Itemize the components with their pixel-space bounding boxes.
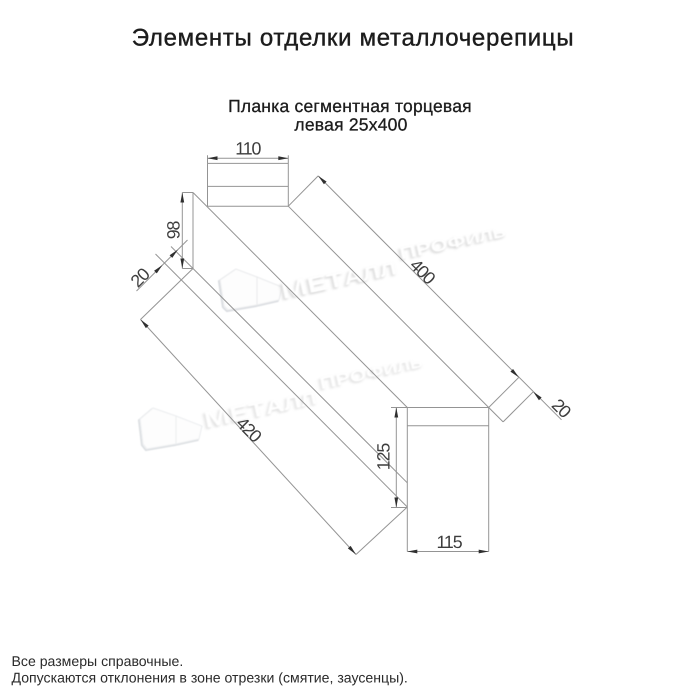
svg-text:98: 98 <box>164 221 184 240</box>
svg-text:125: 125 <box>374 443 394 471</box>
svg-text:Планка сегментная торцевая: Планка сегментная торцевая <box>228 96 472 116</box>
svg-text:Элементы отделки металлочерепи: Элементы отделки металлочерепицы <box>132 25 575 52</box>
svg-text:115: 115 <box>436 532 462 552</box>
svg-text:110: 110 <box>235 139 261 159</box>
svg-text:Допускаются отклонения в зоне: Допускаются отклонения в зоне отрезки (с… <box>12 670 408 686</box>
svg-text:левая 25х400: левая 25х400 <box>294 114 407 134</box>
svg-text:Все размеры справочные.: Все размеры справочные. <box>12 653 184 669</box>
